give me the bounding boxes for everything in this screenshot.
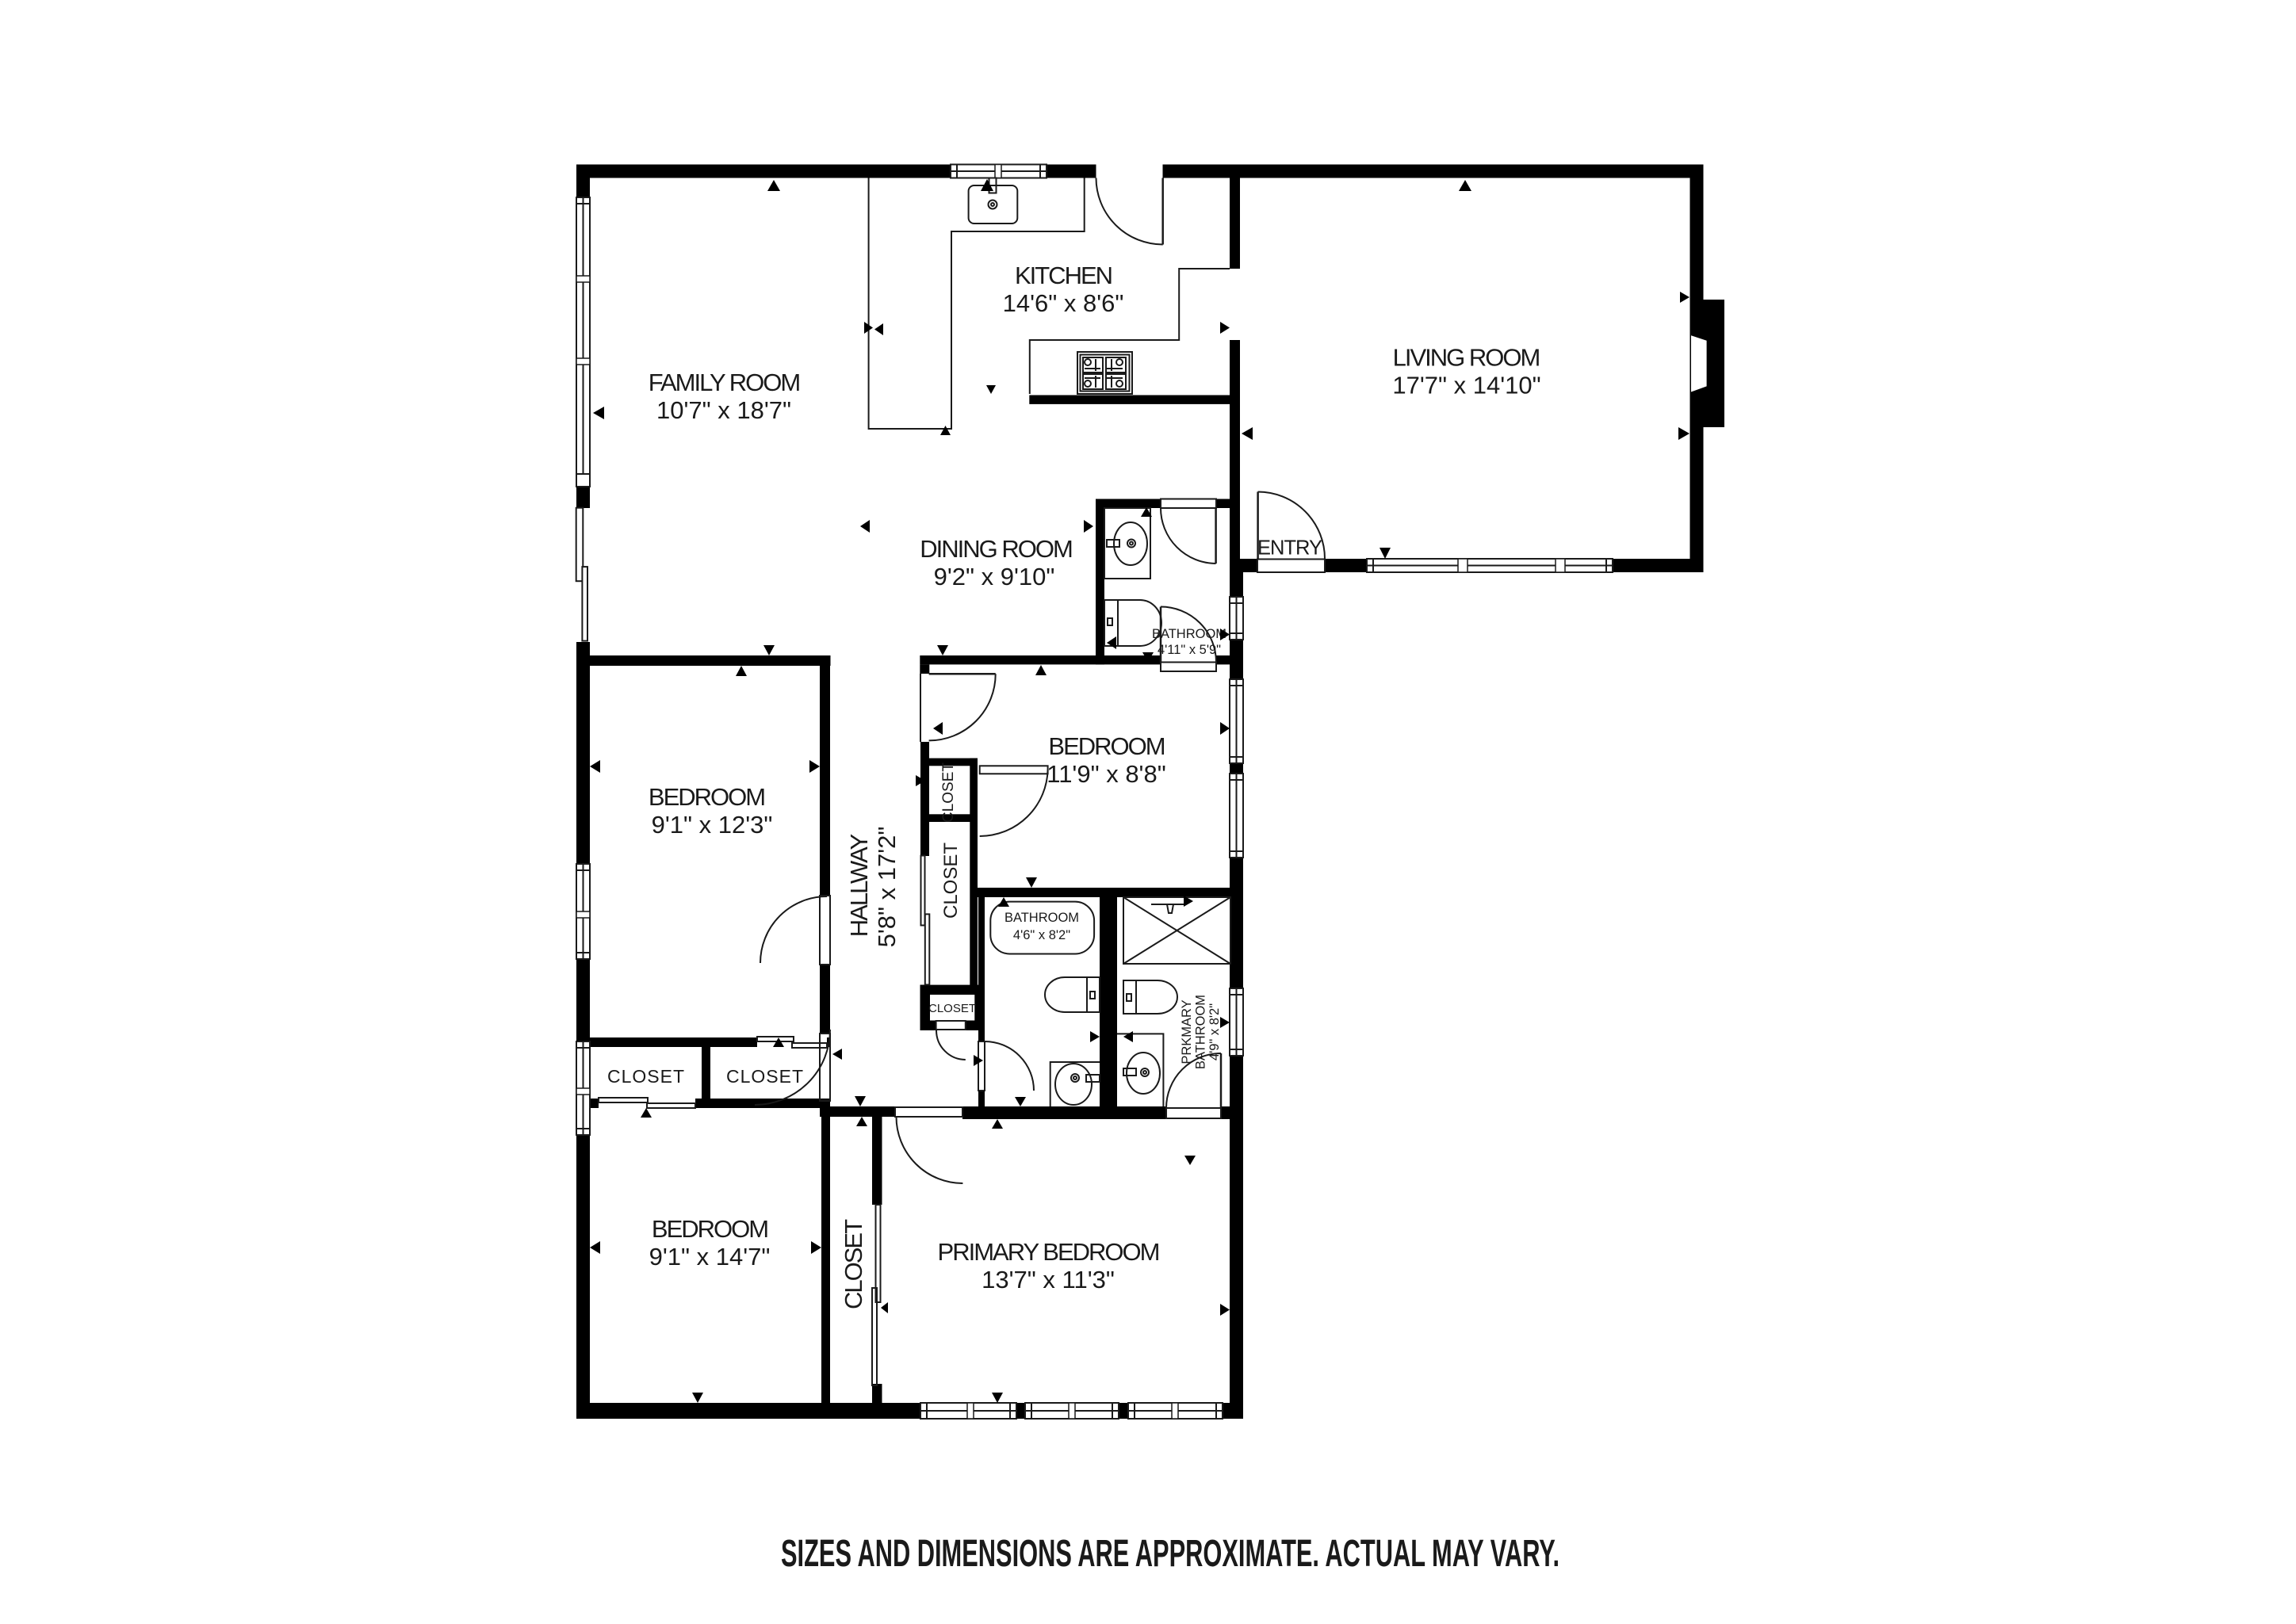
svg-text:11'9" x 8'8": 11'9" x 8'8" xyxy=(1047,760,1165,788)
svg-text:9'1" x 14'7": 9'1" x 14'7" xyxy=(649,1243,771,1271)
svg-text:10'7" x 18'7": 10'7" x 18'7" xyxy=(656,396,791,424)
svg-text:BATHROOM: BATHROOM xyxy=(1004,911,1079,925)
svg-text:ENTRY: ENTRY xyxy=(1257,537,1322,560)
svg-text:9'1" x 12'3": 9'1" x 12'3" xyxy=(652,811,773,839)
svg-text:17'7" x 14'10": 17'7" x 14'10" xyxy=(1392,372,1540,399)
svg-text:CLOSET: CLOSET xyxy=(940,843,962,919)
svg-text:FAMILY ROOM: FAMILY ROOM xyxy=(649,369,800,396)
svg-text:BATHROOM: BATHROOM xyxy=(1194,995,1208,1069)
svg-text:SIZES AND DIMENSIONS ARE APPRO: SIZES AND DIMENSIONS ARE APPROXIMATE. AC… xyxy=(781,1533,1559,1575)
svg-text:13'7" x 11'3": 13'7" x 11'3" xyxy=(982,1266,1115,1293)
svg-text:HALLWAY: HALLWAY xyxy=(845,834,873,937)
svg-text:LIVING ROOM: LIVING ROOM xyxy=(1393,344,1540,372)
svg-text:4'6" x 8'2": 4'6" x 8'2" xyxy=(1013,928,1070,942)
svg-text:4'11" x 5'9": 4'11" x 5'9" xyxy=(1158,643,1221,657)
svg-text:CLOSET: CLOSET xyxy=(940,762,957,823)
svg-text:KITCHEN: KITCHEN xyxy=(1015,262,1112,289)
svg-text:CLOSET: CLOSET xyxy=(607,1066,685,1087)
svg-text:CLOSET: CLOSET xyxy=(928,1002,976,1015)
svg-text:PRKMARY: PRKMARY xyxy=(1180,999,1194,1064)
svg-text:9'2" x 9'10": 9'2" x 9'10" xyxy=(934,563,1055,590)
svg-text:DINING ROOM: DINING ROOM xyxy=(920,535,1072,563)
svg-text:BATHROOM: BATHROOM xyxy=(1152,627,1226,641)
svg-text:BEDROOM: BEDROOM xyxy=(1048,732,1164,760)
svg-text:CLOSET: CLOSET xyxy=(726,1066,804,1087)
svg-text:5'8" x 17'2": 5'8" x 17'2" xyxy=(873,827,901,948)
svg-text:PRIMARY BEDROOM: PRIMARY BEDROOM xyxy=(938,1238,1159,1266)
svg-text:14'6" x 8'6": 14'6" x 8'6" xyxy=(1003,289,1124,317)
svg-text:4'9" x 8'2": 4'9" x 8'2" xyxy=(1207,1003,1222,1060)
svg-text:BEDROOM: BEDROOM xyxy=(649,783,764,811)
svg-text:BEDROOM: BEDROOM xyxy=(652,1215,767,1243)
svg-text:CLOSET: CLOSET xyxy=(840,1219,867,1309)
